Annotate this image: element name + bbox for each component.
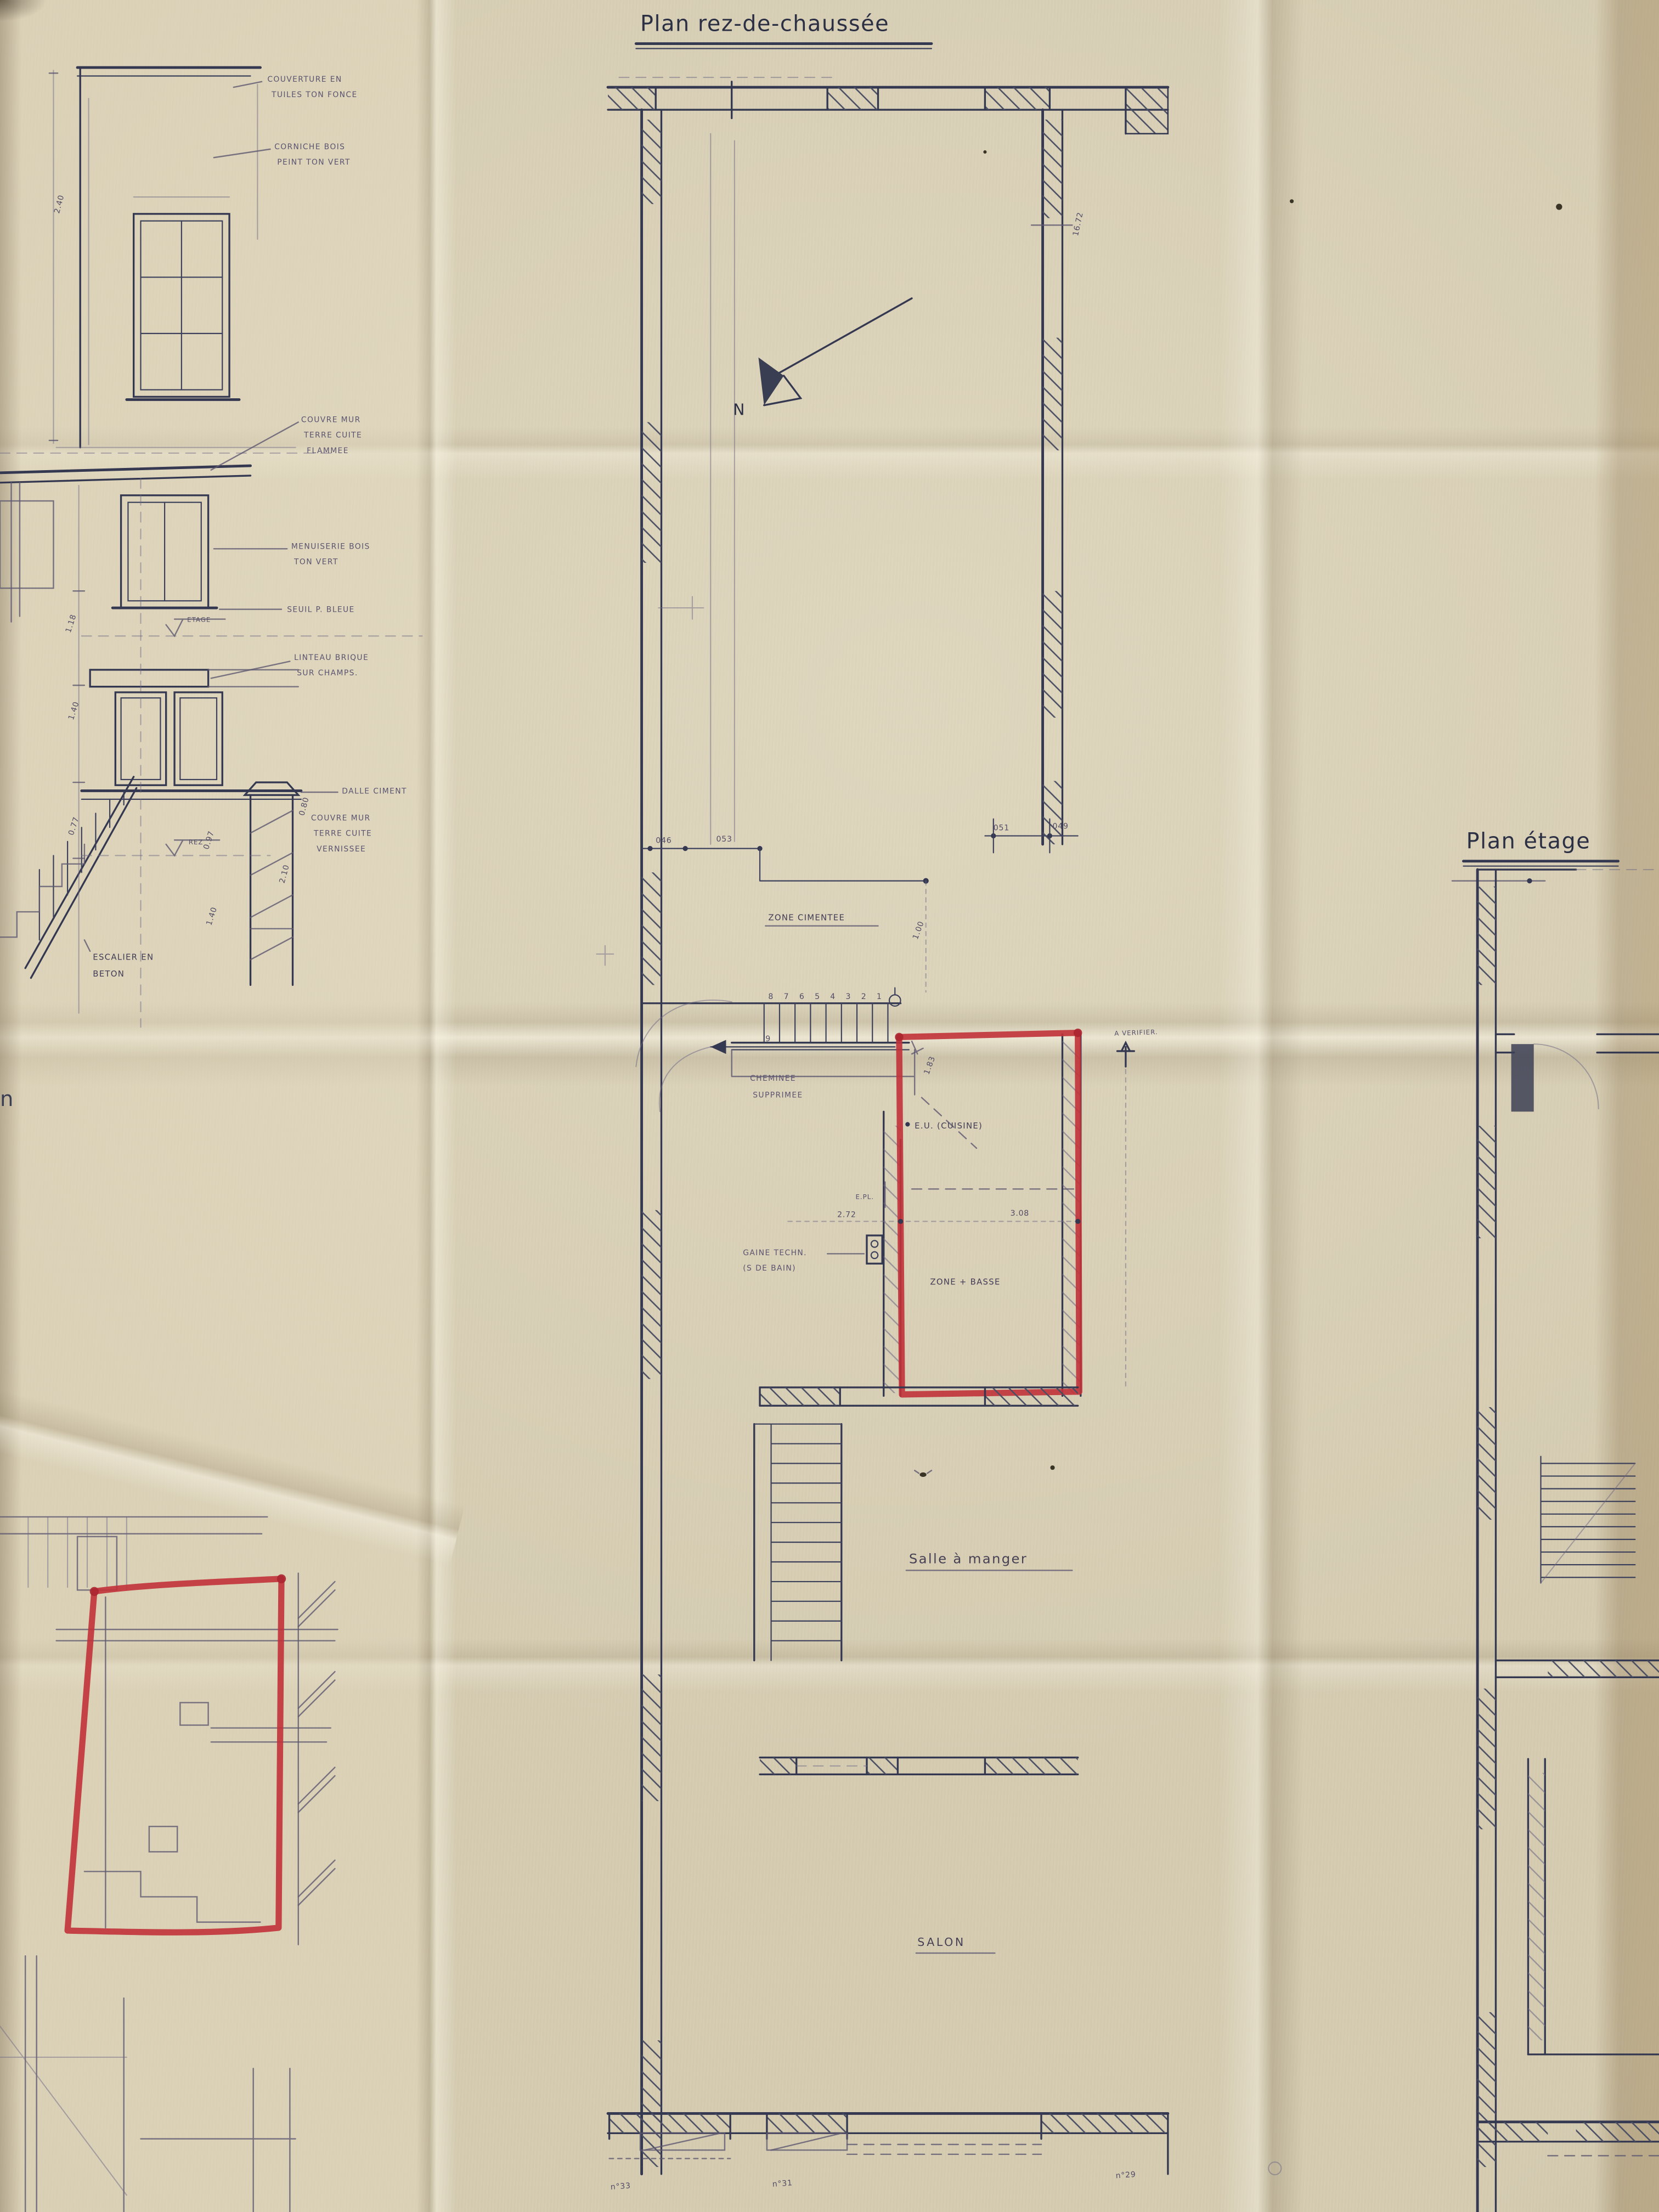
label-cheminee-line2: SUPPRIMEE [753, 1091, 803, 1100]
door-leaf-symbol [1511, 1044, 1534, 1111]
north-arrow: N [733, 298, 912, 419]
label-zone-basse: ZONE + BASSE [930, 1277, 1000, 1287]
label-couvre-mur-line2: TERRE CUITE [303, 431, 362, 440]
label-couvre-mur-v-line2: TERRE CUITE [313, 830, 372, 838]
dim-210: 2.10 [278, 864, 291, 884]
label-corniche-line1: CORNICHE BOIS [274, 143, 345, 151]
label-gaine-line1: GAINE TECHN. [743, 1249, 807, 1257]
blueprint-drawing: 2.40 COUVERTURE EN TUILES TON FONCE CORN… [0, 0, 1659, 2212]
label-couverture-line1: COUVERTURE EN [267, 75, 342, 84]
red-marker-box-left [67, 1579, 281, 1932]
room-label-salon: SALON [917, 1936, 966, 1949]
dim-depth-1672: 16.72 [1071, 211, 1085, 237]
stair-tread-1: 1 [877, 992, 882, 1001]
label-escalier-line1: ESCALIER EN [93, 952, 154, 962]
house-number-31: n°31 [772, 2179, 793, 2189]
label-escalier-line2: BETON [93, 969, 125, 979]
brick-lintel-band [90, 670, 208, 687]
upper-floor-plan: Plan étage [1452, 829, 1659, 2212]
cutoff-letter: n [0, 1087, 13, 1111]
label-level-etage: ETAGE [187, 616, 211, 624]
bottom-facade: n°33 n°31 n°29 [608, 2113, 1281, 2191]
blueprint-photo: 2.40 COUVERTURE EN TUILES TON FONCE CORN… [0, 0, 1659, 2212]
stair-landing-9: 9 [765, 1035, 771, 1043]
stair-tread-8: 8 [768, 992, 774, 1001]
dim-140b: 1.40 [205, 906, 219, 927]
title-ground-floor: Plan rez-de-chaussée [640, 11, 889, 36]
section-bottom-left: n [0, 1087, 338, 2212]
label-epl: E.PL. [855, 1193, 874, 1200]
label-level-rez: REZ [189, 838, 204, 846]
label-menuiserie-line1: MENUISERIE BOIS [291, 542, 370, 551]
label-a-verifier: A VERIFIER. [1114, 1028, 1158, 1037]
title-upper-floor: Plan étage [1466, 829, 1591, 854]
elevation-top-left: 2.40 COUVERTURE EN TUILES TON FONCE CORN… [0, 67, 358, 453]
label-corniche-line2: PEINT TON VERT [277, 158, 351, 167]
label-couvre-mur-line1: COUVRE MUR [301, 415, 361, 424]
gaine-technique-symbol [867, 1235, 882, 1263]
stair-tread-3: 3 [845, 992, 851, 1001]
label-menuiserie-line2: TON VERT [294, 558, 338, 567]
dim-308: 3.08 [1011, 1209, 1029, 1218]
house-number-33: n°33 [610, 2181, 631, 2192]
label-couvre-mur-v-line1: COUVRE MUR [311, 814, 371, 822]
dim-051: 051 [994, 823, 1009, 832]
room-label-salle-a-manger: Salle à manger [909, 1551, 1028, 1567]
label-linteau-line1: LINTEAU BRIQUE [294, 653, 369, 662]
dim-100: 1.00 [911, 920, 926, 941]
dim-240: 2.40 [53, 194, 66, 214]
dim-046: 046 [656, 836, 672, 845]
dim-049: 049 [1053, 822, 1069, 831]
stair-tread-6: 6 [799, 992, 805, 1001]
north-arrow-head [758, 357, 783, 405]
stair-tread-4: 4 [830, 992, 836, 1001]
dim-183: 1.83 [923, 1055, 938, 1076]
north-label: N [733, 401, 744, 419]
label-seuil: SEUIL P. BLEUE [287, 606, 354, 614]
stair-tread-2: 2 [861, 992, 867, 1001]
label-couvre-mur-line3: FLAMMEE [307, 447, 349, 455]
red-marker-box-kitchen [895, 1029, 1082, 1395]
interior-stair [754, 1424, 842, 1661]
stair-tread-7: 7 [784, 992, 789, 1001]
stair-tread-5: 5 [815, 992, 820, 1001]
label-couverture-line2: TUILES TON FONCE [271, 91, 358, 99]
label-linteau-line2: SUR CHAMPS. [297, 669, 358, 678]
label-gaine-line2: (S DE BAIN) [743, 1264, 796, 1273]
dim-272: 2.72 [837, 1211, 856, 1220]
label-eu-cuisine: E.U. (CUISINE) [915, 1121, 983, 1131]
label-zone-cimentee: ZONE CIMENTEE [768, 912, 845, 922]
ground-floor-plan: Plan rez-de-chaussée [597, 11, 1282, 2192]
ink-speck [915, 1470, 932, 1477]
label-cheminee-line1: CHEMINEE [750, 1074, 796, 1083]
label-dalle-ciment: DALLE CIMENT [342, 787, 407, 796]
house-number-29: n°29 [1115, 2170, 1136, 2181]
label-couvre-mur-v-line3: VERNISSEE [317, 845, 366, 854]
dim-118: 1.18 [64, 613, 78, 634]
dim-053: 053 [716, 835, 732, 844]
elevation-mid-left: COUVRE MUR TERRE CUITE FLAMMEE MENUISERI… [0, 415, 422, 1027]
